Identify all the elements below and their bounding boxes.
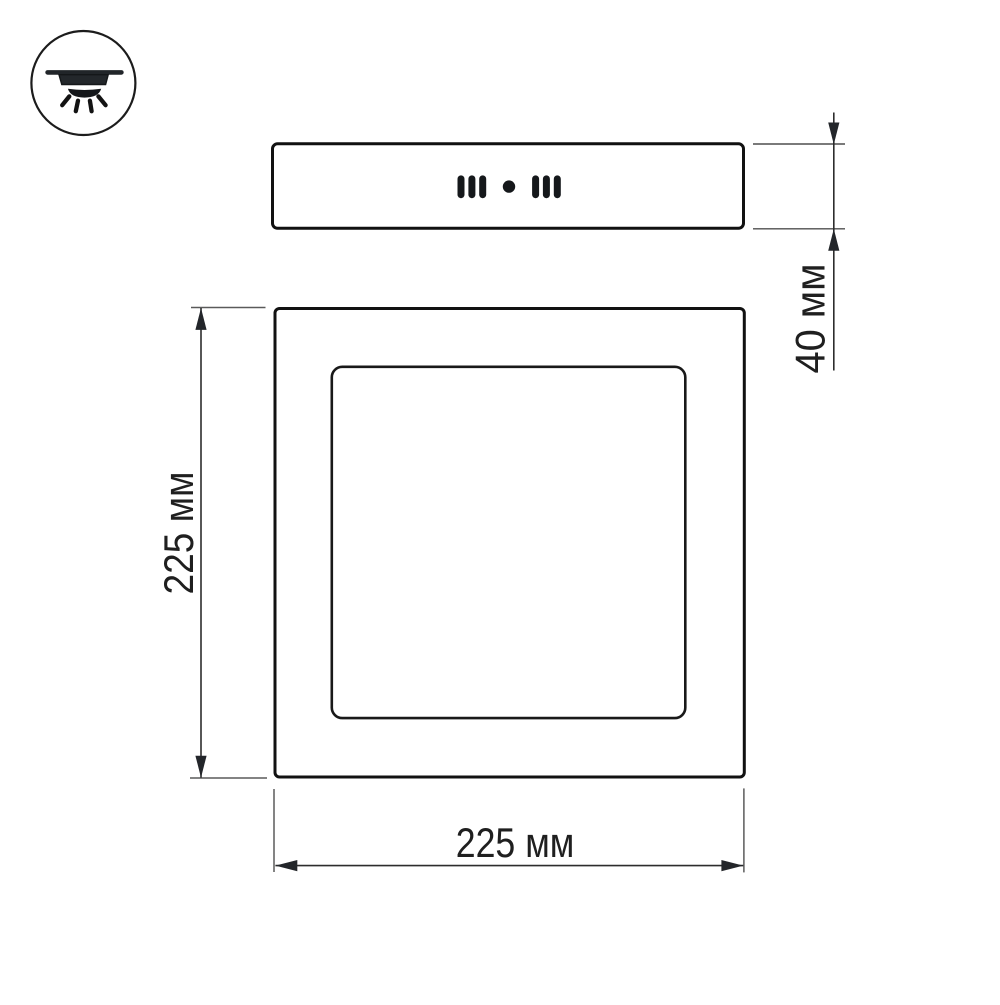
svg-text:225 мм: 225 мм <box>155 472 202 595</box>
svg-text:40 мм: 40 мм <box>787 264 834 374</box>
svg-text:225 мм: 225 мм <box>456 819 575 866</box>
